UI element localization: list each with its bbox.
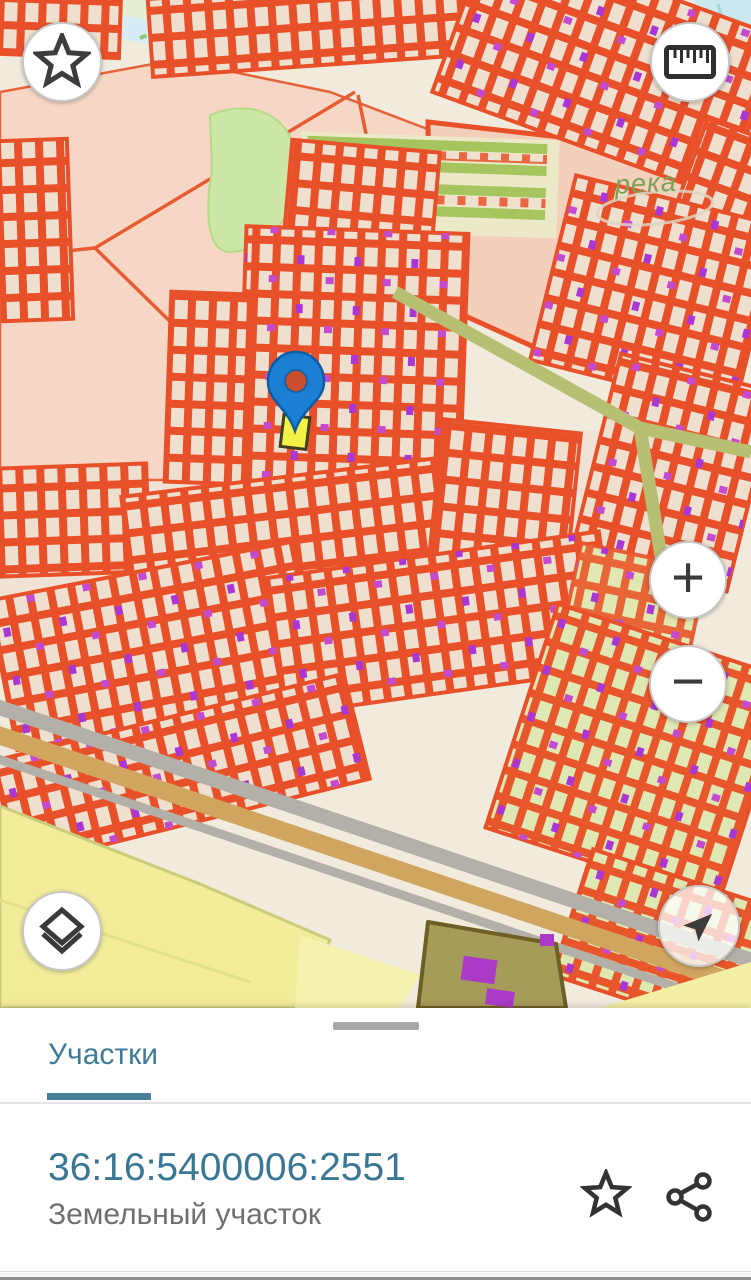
favorite-parcel-button[interactable] <box>577 1166 635 1224</box>
minus-icon: − <box>671 653 705 711</box>
layers-icon <box>34 903 90 959</box>
sheet-divider <box>0 1102 751 1104</box>
measure-button[interactable] <box>650 22 730 102</box>
compass-button[interactable] <box>658 885 740 967</box>
layers-button[interactable] <box>22 891 102 971</box>
tab-parcels[interactable]: Участки <box>48 1038 158 1072</box>
share-icon <box>664 1172 714 1222</box>
sheet-drag-handle[interactable] <box>333 1022 419 1030</box>
ruler-icon <box>664 45 716 79</box>
navigation-arrow-icon <box>676 903 722 949</box>
river-label: река <box>613 167 677 200</box>
bottom-sheet: Участки 36:16:5400006:2551 Земельный уча… <box>0 1008 751 1280</box>
cadastral-number-link[interactable]: 36:16:5400006:2551 <box>48 1146 406 1190</box>
tab-active-indicator <box>47 1093 151 1100</box>
zoom-in-button[interactable]: + <box>649 541 727 619</box>
footer-strip <box>0 1271 751 1280</box>
star-icon <box>33 33 91 91</box>
parcel-type-label: Земельный участок <box>48 1198 321 1232</box>
star-icon <box>580 1169 632 1221</box>
share-parcel-button[interactable] <box>662 1170 716 1224</box>
zoom-out-button[interactable]: − <box>649 645 727 723</box>
app-screen: река <box>0 0 751 1280</box>
favorites-button[interactable] <box>22 22 102 102</box>
map-canvas[interactable]: река <box>0 0 751 1008</box>
plus-icon: + <box>671 549 705 607</box>
cadastral-map: река <box>0 0 751 1008</box>
industrial-parcel <box>418 922 566 1008</box>
